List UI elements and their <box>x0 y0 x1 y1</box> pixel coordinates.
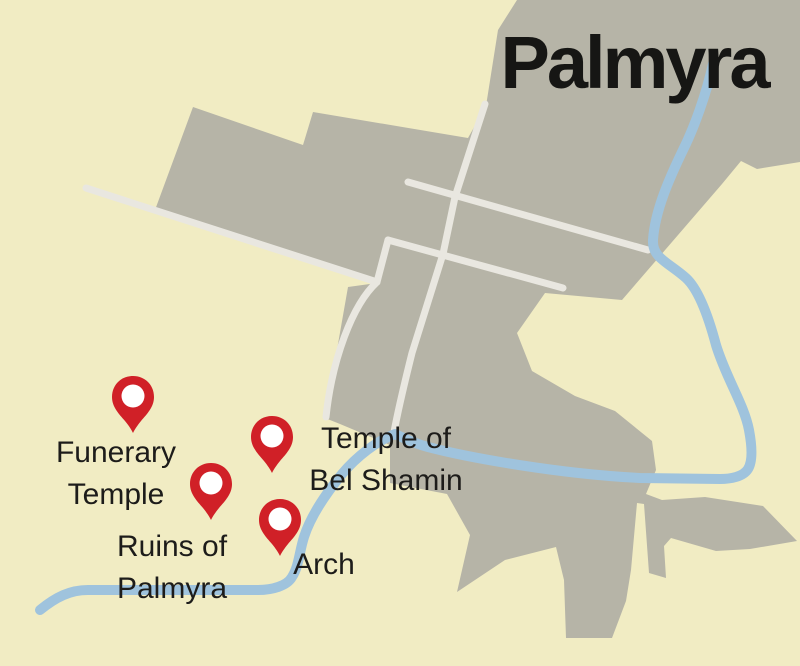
map-pin-ruins-of-palmyra[interactable] <box>189 462 233 520</box>
label-line: Bel Shamin <box>276 460 496 502</box>
pin-hole <box>122 385 145 408</box>
label-line: Temple <box>16 474 216 516</box>
label-ruins-of-palmyra: Ruins of Palmyra <box>72 526 272 610</box>
map-title: Palmyra <box>494 26 774 100</box>
map-pin-arch[interactable] <box>258 498 302 556</box>
label-funerary-temple: Funerary Temple <box>16 432 216 516</box>
pin-hole <box>269 508 292 531</box>
label-temple-of-bel-shamin: Temple of Bel Shamin <box>276 418 496 502</box>
label-line: Temple of <box>276 418 496 460</box>
label-line: Funerary <box>16 432 216 474</box>
map-pin-funerary-temple[interactable] <box>111 375 155 433</box>
label-line: Ruins of <box>72 526 272 568</box>
map-pin-temple-of-bel-shamin[interactable] <box>250 415 294 473</box>
label-line: Palmyra <box>72 568 272 610</box>
pin-hole <box>200 472 223 495</box>
palmyra-map: Palmyra Funerary Temple Temple of Bel Sh… <box>0 0 800 666</box>
pin-hole <box>261 425 284 448</box>
